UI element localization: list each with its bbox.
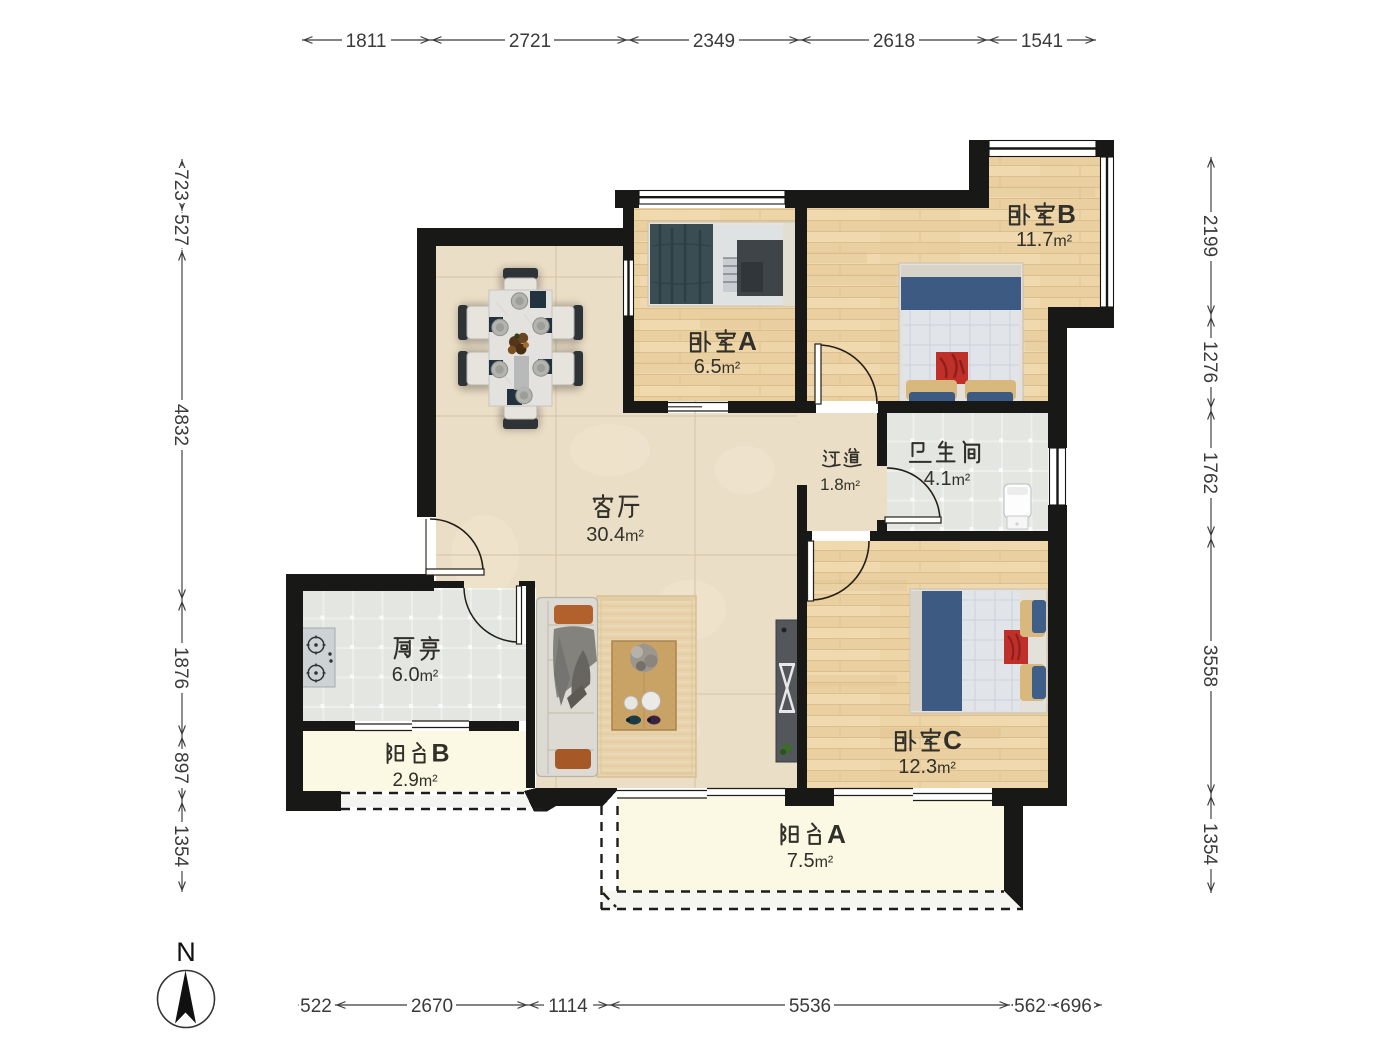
svg-text:4.1m²: 4.1m² xyxy=(924,468,971,490)
svg-text:527: 527 xyxy=(170,214,191,246)
svg-text:723: 723 xyxy=(170,169,191,201)
svg-text:2199: 2199 xyxy=(1199,215,1220,257)
svg-text:2721: 2721 xyxy=(509,31,551,52)
svg-text:1541: 1541 xyxy=(1021,31,1063,52)
svg-text:B: B xyxy=(1057,199,1076,229)
svg-text:522: 522 xyxy=(300,996,332,1017)
svg-text:696: 696 xyxy=(1060,996,1092,1017)
svg-text:1354: 1354 xyxy=(170,825,191,868)
svg-text:1.8m²: 1.8m² xyxy=(820,475,860,494)
svg-text:2618: 2618 xyxy=(873,31,915,52)
svg-text:2670: 2670 xyxy=(411,996,453,1017)
svg-text:3558: 3558 xyxy=(1199,645,1220,687)
svg-text:897: 897 xyxy=(170,752,191,784)
svg-text:30.4m²: 30.4m² xyxy=(586,524,644,546)
svg-text:1276: 1276 xyxy=(1199,341,1220,383)
svg-text:11.7m²: 11.7m² xyxy=(1016,229,1073,251)
svg-text:B: B xyxy=(431,740,449,768)
svg-text:C: C xyxy=(943,725,962,755)
svg-text:4832: 4832 xyxy=(170,404,191,446)
svg-text:1114: 1114 xyxy=(548,996,588,1017)
svg-text:A: A xyxy=(738,326,757,356)
svg-text:1762: 1762 xyxy=(1199,452,1220,494)
svg-text:2.9m²: 2.9m² xyxy=(392,770,438,791)
svg-text:1811: 1811 xyxy=(346,31,387,52)
svg-text:562: 562 xyxy=(1014,996,1046,1017)
svg-text:N: N xyxy=(176,937,196,967)
svg-text:6.5m²: 6.5m² xyxy=(694,356,741,378)
svg-text:1354: 1354 xyxy=(1199,823,1220,866)
svg-text:2349: 2349 xyxy=(693,31,735,52)
svg-text:1876: 1876 xyxy=(170,647,191,689)
svg-text:12.3m²: 12.3m² xyxy=(898,756,956,778)
svg-text:6.0m²: 6.0m² xyxy=(392,664,439,686)
svg-text:A: A xyxy=(827,819,846,849)
svg-text:5536: 5536 xyxy=(789,996,831,1017)
svg-text:7.5m²: 7.5m² xyxy=(787,850,834,872)
